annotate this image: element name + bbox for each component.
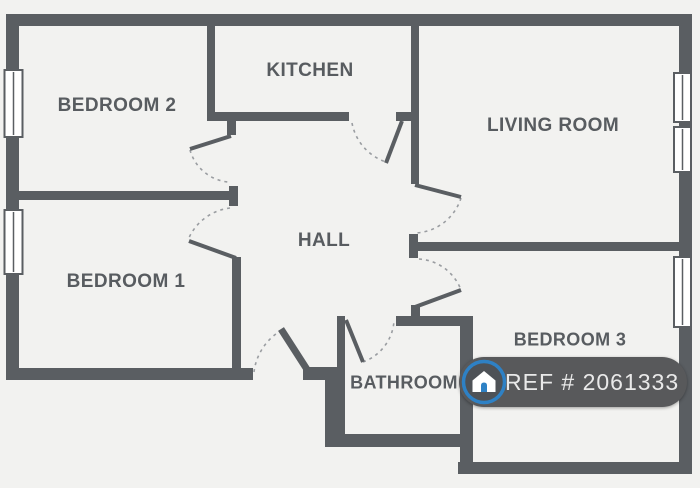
room-label-livingroom: LIVING ROOM [487,115,619,137]
wall-bathroom-top [396,316,473,326]
wall-bedroom1-right [232,257,241,370]
door-swing-livingroom [415,198,461,233]
room-label-bedroom2: BEDROOM 2 [58,95,177,117]
house-icon [461,359,507,405]
window-bedroom3 [674,257,691,327]
room-label-bedroom1: BEDROOM 1 [67,271,186,293]
floor-plan: BEDROOM 2 KITCHEN LIVING ROOM HALL BEDRO… [0,0,700,488]
room-label-bedroom3: BEDROOM 3 [514,330,627,351]
door-swing-bathroom [363,321,394,362]
door-swing-entrance [254,330,282,372]
jamb-bedroom2-door [227,121,236,135]
door-entrance [281,329,308,371]
wall-bathroom-left [337,316,345,438]
wall-bathroom-bottom [325,434,471,447]
ref-badge: REF # 2061333 [459,357,687,407]
room-label-kitchen: KITCHEN [266,60,353,82]
door-swing-bedroom1 [188,208,230,240]
door-kitchen [386,121,402,163]
wall-top [6,14,692,26]
door-bathroom [346,320,363,362]
jamb-livingroom-door [409,234,418,258]
wall-livingroom-bedroom3-divider [414,242,692,251]
door-bedroom2 [190,136,231,149]
door-swing-bedroom2 [190,150,228,182]
room-label-bathroom: BATHROOM [350,373,458,394]
door-bedroom3 [415,290,461,307]
wall-bedroom3-bottom [458,462,692,474]
jamb-kitchen-door [396,112,411,121]
wall-kitchen-bottom [207,112,349,121]
window-bedroom1 [5,210,23,274]
room-label-hall: HALL [298,230,350,252]
window-livingroom-lower [674,127,691,172]
wall-bedroom2-kitchen-divider [207,26,215,120]
wall-bedroom1-bedroom2-divider [6,191,232,200]
jamb-bedroom1-door [229,186,238,206]
wall-livingroom-hall-divider [411,26,419,184]
door-livingroom [415,185,461,197]
door-swing-kitchen [352,123,386,162]
window-livingroom-upper [674,73,691,122]
door-bedroom1 [189,241,236,258]
ref-number: REF # 2061333 [505,357,679,407]
wall-bedroom1-bottom [6,368,253,380]
window-bedroom2 [5,70,23,137]
door-swing-bedroom3 [419,259,461,290]
